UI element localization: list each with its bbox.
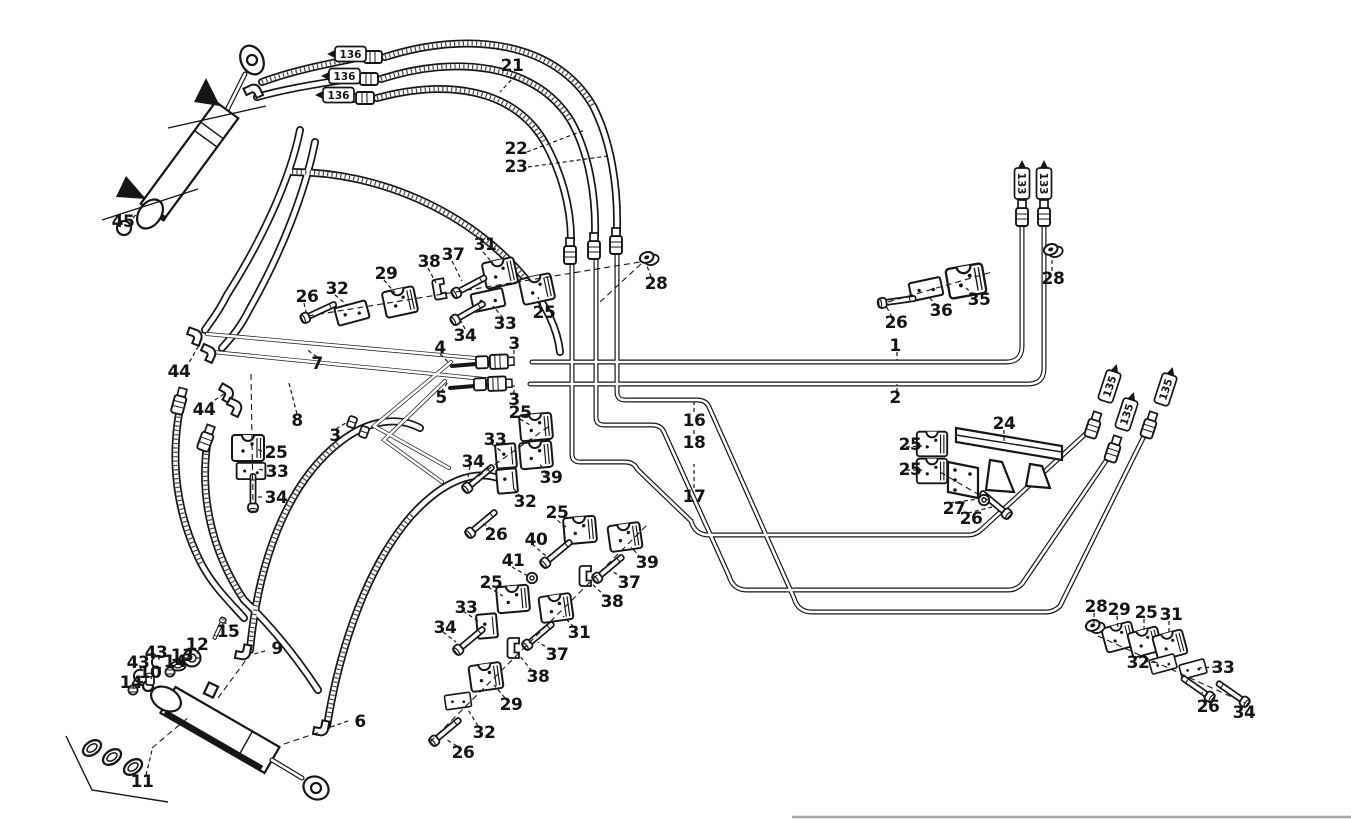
part-label-34: 34 bbox=[1233, 703, 1256, 723]
part-ring bbox=[80, 737, 104, 759]
part-nutfit bbox=[1038, 200, 1050, 226]
part-label-37: 37 bbox=[546, 645, 569, 665]
part-label-32: 32 bbox=[1127, 653, 1150, 673]
part-label-26: 26 bbox=[1197, 697, 1220, 717]
svg-text:136: 136 bbox=[340, 49, 362, 61]
part-label-34: 34 bbox=[434, 618, 457, 638]
part-label-36: 36 bbox=[930, 301, 953, 321]
part-clamp bbox=[538, 593, 573, 623]
part-clamp bbox=[232, 435, 264, 461]
svg-text:136: 136 bbox=[328, 90, 350, 102]
part-label-25: 25 bbox=[480, 573, 503, 593]
part-label-33: 33 bbox=[266, 462, 289, 482]
part-label-40: 40 bbox=[525, 530, 548, 550]
part-label-25: 25 bbox=[509, 403, 532, 423]
part-label-44: 44 bbox=[193, 400, 216, 420]
part-label-38: 38 bbox=[418, 252, 441, 272]
parts-layer bbox=[80, 51, 1251, 778]
part-label-26: 26 bbox=[452, 743, 475, 763]
part-label-3: 3 bbox=[329, 426, 340, 446]
part-label-1: 1 bbox=[889, 336, 900, 356]
cylinder-bottom bbox=[66, 681, 333, 804]
part-union bbox=[476, 354, 514, 369]
part-label-25: 25 bbox=[546, 503, 569, 523]
part-label-45: 45 bbox=[112, 212, 135, 232]
part-label-8: 8 bbox=[291, 411, 302, 431]
part-label-26: 26 bbox=[485, 525, 508, 545]
part-label-32: 32 bbox=[326, 279, 349, 299]
part-nutfit bbox=[1140, 411, 1159, 439]
part-nutfit bbox=[588, 233, 600, 259]
svg-text:133: 133 bbox=[1015, 173, 1027, 195]
part-washer bbox=[527, 573, 537, 583]
part-label-34: 34 bbox=[454, 326, 477, 346]
part-bolt bbox=[449, 299, 487, 327]
part-clamp bbox=[519, 441, 553, 470]
part-label-26: 26 bbox=[960, 509, 983, 529]
part-ring bbox=[100, 746, 124, 768]
part-label-35: 35 bbox=[968, 290, 991, 310]
part-label-2: 2 bbox=[889, 388, 900, 408]
svg-text:133: 133 bbox=[1037, 173, 1049, 195]
hose-tag-135: 135 bbox=[1098, 362, 1124, 404]
part-label-33: 33 bbox=[494, 314, 517, 334]
part-label-41: 41 bbox=[502, 551, 525, 571]
part-label-17: 17 bbox=[683, 487, 706, 507]
part-clip bbox=[432, 278, 447, 300]
part-plate bbox=[334, 300, 370, 326]
part-plate bbox=[1149, 654, 1177, 675]
part-label-29: 29 bbox=[375, 264, 398, 284]
part-nutfit bbox=[610, 228, 622, 254]
part-grommet bbox=[638, 250, 660, 267]
part-clamp bbox=[519, 273, 556, 305]
hose-tag-133: 133 bbox=[1015, 160, 1030, 199]
part-label-37: 37 bbox=[618, 573, 641, 593]
part-label-31: 31 bbox=[1160, 605, 1183, 625]
part-label-44: 44 bbox=[168, 362, 191, 382]
part-label-28: 28 bbox=[1042, 269, 1065, 289]
part-label-25: 25 bbox=[899, 435, 922, 455]
part-label-32: 32 bbox=[514, 492, 537, 512]
part-label-33: 33 bbox=[1212, 658, 1235, 678]
part-label-21: 21 bbox=[501, 56, 524, 76]
hose-tag-136: 136 bbox=[315, 88, 354, 103]
part-label-33: 33 bbox=[484, 430, 507, 450]
cylinder-top bbox=[102, 42, 268, 235]
part-label-18: 18 bbox=[683, 433, 706, 453]
part-elbow bbox=[185, 327, 204, 345]
part-nutfit bbox=[564, 238, 576, 264]
part-plate bbox=[444, 692, 471, 710]
part-label-4: 4 bbox=[434, 338, 445, 358]
hose-tag-135: 135 bbox=[1115, 390, 1141, 432]
part-label-25: 25 bbox=[533, 303, 556, 323]
part-label-6: 6 bbox=[354, 712, 365, 732]
part-label-37: 37 bbox=[442, 245, 465, 265]
part-label-3: 3 bbox=[508, 334, 519, 354]
part-elbow bbox=[198, 344, 218, 363]
part-label-22: 22 bbox=[505, 139, 528, 159]
part-label-23: 23 bbox=[505, 157, 528, 177]
part-label-34: 34 bbox=[462, 452, 485, 472]
part-clamp bbox=[917, 459, 947, 484]
part-label-14: 14 bbox=[164, 652, 187, 672]
part-label-29: 29 bbox=[500, 695, 523, 715]
part-nutfit bbox=[1084, 411, 1103, 439]
part-label-14: 14 bbox=[120, 673, 143, 693]
part-clamp bbox=[382, 286, 419, 318]
part-label-33: 33 bbox=[455, 598, 478, 618]
part-label-34: 34 bbox=[265, 488, 288, 508]
part-label-25: 25 bbox=[1135, 603, 1158, 623]
part-label-24: 24 bbox=[993, 414, 1016, 434]
part-elbow bbox=[235, 643, 251, 660]
part-label-16: 16 bbox=[683, 411, 706, 431]
part-label-25: 25 bbox=[265, 443, 288, 463]
hose-tag-135: 135 bbox=[1154, 365, 1180, 407]
part-label-11: 11 bbox=[131, 772, 154, 792]
part-label-32: 32 bbox=[473, 723, 496, 743]
part-clamp bbox=[917, 432, 947, 457]
part-label-25: 25 bbox=[899, 460, 922, 480]
part-label-28: 28 bbox=[645, 274, 668, 294]
part-label-39: 39 bbox=[540, 468, 563, 488]
part-nutfit bbox=[171, 387, 189, 415]
part-smallfit bbox=[346, 415, 357, 428]
part-label-15: 15 bbox=[217, 622, 240, 642]
part-bolt bbox=[451, 624, 487, 656]
part-label-28: 28 bbox=[1085, 597, 1108, 617]
part-label-7: 7 bbox=[311, 354, 322, 374]
part-label-26: 26 bbox=[296, 287, 319, 307]
part-label-38: 38 bbox=[527, 667, 550, 687]
hose-tag-133: 133 bbox=[1037, 160, 1052, 199]
bracket-rail bbox=[948, 428, 1062, 498]
part-clamp bbox=[468, 662, 503, 692]
svg-text:136: 136 bbox=[334, 71, 356, 83]
part-nutfit bbox=[1016, 200, 1028, 226]
part-nutfit bbox=[197, 424, 217, 453]
part-label-29: 29 bbox=[1108, 600, 1131, 620]
part-label-39: 39 bbox=[636, 553, 659, 573]
part-label-26: 26 bbox=[885, 313, 908, 333]
part-union bbox=[474, 376, 512, 391]
part-label-5: 5 bbox=[435, 388, 446, 408]
part-label-31: 31 bbox=[474, 235, 497, 255]
part-label-9: 9 bbox=[271, 639, 282, 659]
part-nutfit bbox=[1104, 435, 1123, 463]
part-label-38: 38 bbox=[601, 592, 624, 612]
part-label-31: 31 bbox=[568, 623, 591, 643]
hydraulic-parts-diagram: 136136136133133135135135 452122232632293… bbox=[0, 0, 1351, 820]
